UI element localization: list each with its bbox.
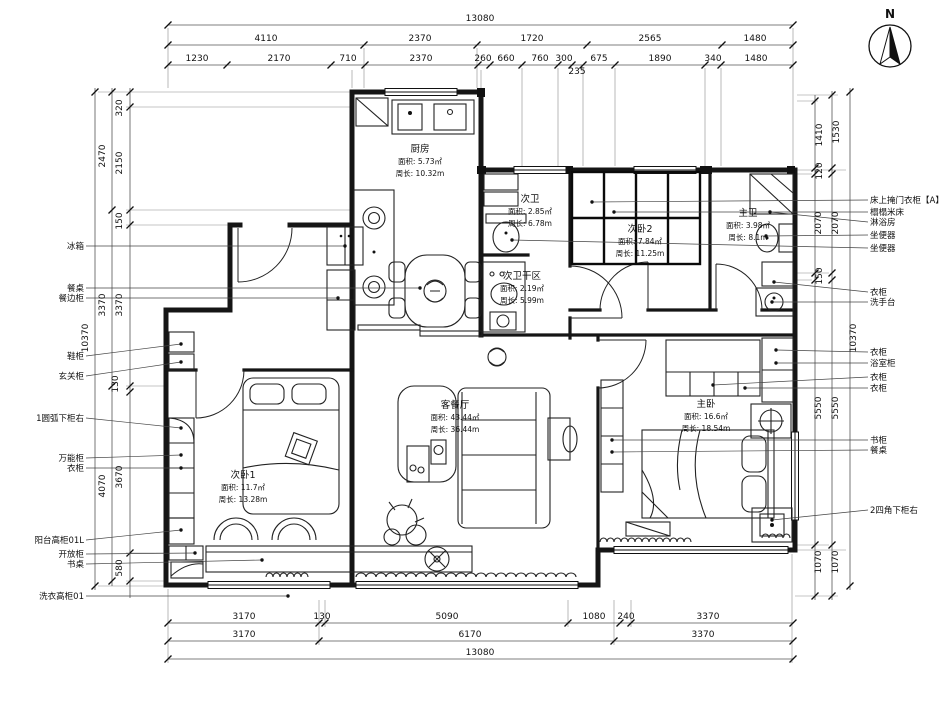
dimension-label: 120 [815, 162, 825, 179]
dimension-label: 2150 [115, 151, 125, 174]
pillow [742, 476, 766, 512]
leader-dot [336, 296, 339, 299]
room-name: 次卧1 [230, 469, 255, 481]
callout-label: 冰箱 [67, 241, 85, 252]
leader-dot [770, 518, 773, 521]
window-bedroom1-balcony [208, 582, 330, 589]
dimension-label: 320 [115, 99, 125, 116]
leader-line [86, 553, 195, 554]
leader-line [772, 510, 868, 520]
leader-dot [418, 286, 421, 289]
leader-dot [774, 348, 777, 351]
room-area: 面积: 16.6㎡ [684, 411, 729, 421]
callout-label: 淋浴房 [870, 217, 896, 228]
dimension-label: 1080 [583, 612, 606, 622]
room-area: 面积: 3.98㎡ [726, 220, 771, 230]
dimension-label: 1890 [649, 54, 672, 64]
callout-label: 1圆弧下柜右 [36, 413, 84, 424]
dimension-label: 675 [590, 54, 607, 64]
room-area: 面积: 11.7㎡ [221, 482, 266, 492]
dimension-label: 10370 [849, 323, 859, 352]
dimension-label: 2565 [639, 34, 662, 44]
dimension-label: 5550 [831, 396, 841, 419]
bedroom1-door [196, 370, 244, 418]
room-perimeter: 周长: 36.44m [431, 424, 480, 434]
dimension-label: 240 [617, 612, 634, 622]
callout-label: 洗手台 [870, 297, 896, 308]
leader-dot [610, 438, 613, 441]
dimension-label: 10370 [81, 323, 91, 352]
leader-line [592, 200, 868, 202]
callout-label: 玄关柜 [58, 371, 84, 382]
pillow [742, 436, 766, 472]
floor-plan-canvas: 冰箱餐桌餐边柜鞋柜玄关柜1圆弧下柜右万能柜衣柜阳台高柜01L开放柜书桌洗衣高柜0… [0, 0, 947, 701]
callout-label: 浴室柜 [870, 358, 896, 369]
stool [214, 518, 316, 540]
curtains [266, 534, 790, 577]
dimension-label: 710 [339, 54, 356, 64]
dimension-label: 340 [704, 54, 721, 64]
dimension-label: 4110 [255, 34, 278, 44]
leader-dot [286, 594, 289, 597]
floor-plant [387, 505, 417, 535]
leader-dot [774, 361, 777, 364]
leader-dot [772, 280, 775, 283]
room-area: 面积: 5.73㎡ [398, 156, 443, 166]
shoe-cabinet [169, 332, 194, 352]
leader-dot [590, 200, 593, 203]
dimension-label: 130 [111, 375, 121, 392]
compass-needle-black [890, 27, 900, 64]
master-bed [642, 430, 774, 518]
dimension-label: 4070 [98, 474, 108, 497]
dimension-label: 2370 [409, 34, 432, 44]
wall-column [477, 88, 485, 97]
callout-label: 榻榻米床 [870, 207, 905, 218]
room-perimeter: 周长: 6.78m [508, 218, 552, 228]
room-perimeter: 周长: 5.99m [500, 295, 544, 305]
chair [389, 298, 405, 318]
leader-dot [768, 210, 771, 213]
pillow [292, 384, 326, 404]
room-area: 面积: 7.84㎡ [618, 236, 663, 246]
dimension-label: 5550 [814, 396, 824, 419]
leader-dot [743, 386, 746, 389]
north-label: N [885, 7, 895, 21]
dimension-label: 13080 [466, 648, 495, 658]
room-area: 面积: 43.44㎡ [431, 412, 480, 422]
callout-label: 阳台高柜01L [34, 535, 84, 546]
leader-dot [610, 450, 613, 453]
room-name: 次卫干区 [503, 270, 542, 282]
dimension-label: 2370 [410, 54, 433, 64]
chair [389, 262, 405, 282]
dimension-label: 260 [474, 54, 491, 64]
dimension-label: 3370 [692, 630, 715, 640]
kitchen-sliding-door [358, 325, 482, 336]
dimension-label: 1720 [521, 34, 544, 44]
dimension-label: 660 [497, 54, 514, 64]
leader-dot [179, 466, 182, 469]
dimension-label: 300 [555, 54, 572, 64]
callout-label: 洗衣高柜01 [39, 591, 84, 602]
leader-dot [179, 426, 182, 429]
laundry-cabinet [171, 562, 203, 578]
dimension-label: 1530 [832, 120, 842, 143]
window-kitchen [385, 89, 457, 96]
window-bath2 [514, 167, 566, 174]
dimension-label: 1230 [186, 54, 209, 64]
master-door [598, 340, 646, 388]
room-perimeter: 周长: 8.1m [728, 232, 767, 242]
leader-line [612, 450, 868, 452]
callout-label: 餐桌 [870, 445, 888, 456]
dimension-label: 3670 [115, 465, 125, 488]
dimension-label: 150 [815, 267, 825, 284]
outer-walls [166, 92, 795, 585]
toilet [779, 224, 793, 252]
dimension-label: 3170 [233, 612, 256, 622]
leader-dot [179, 453, 182, 456]
callout-label: 餐桌 [67, 283, 85, 294]
dimension-label: 5090 [436, 612, 459, 622]
callout-label: 衣柜 [870, 287, 888, 298]
leader-dot [711, 383, 714, 386]
dimension-label: 2070 [814, 211, 824, 234]
compass-needle-white [880, 27, 890, 64]
dimension-label: 1070 [831, 550, 841, 573]
room-name: 次卫 [520, 193, 540, 205]
dimension-label: 2170 [268, 54, 291, 64]
masterbath-fixtures [750, 174, 793, 316]
callout-label: 床上掩门衣柜【A】 [870, 195, 944, 206]
callout-label: 餐边柜 [58, 293, 84, 304]
leader-dot [510, 238, 513, 241]
room-name: 次卧2 [627, 223, 652, 235]
dimension-label: 130 [313, 612, 330, 622]
dimension-label: 1480 [745, 54, 768, 64]
wall-column [700, 166, 712, 174]
callout-label: 坐便器 [870, 243, 896, 254]
desk [206, 546, 472, 572]
window-master-right [792, 432, 799, 520]
dimension-label: 150 [115, 212, 125, 229]
room-perimeter: 周长: 18.54m [682, 423, 731, 433]
callout-label: 衣柜 [870, 372, 888, 383]
callout-label: 坐便器 [870, 230, 896, 241]
dimension-label: 760 [531, 54, 548, 64]
masterbath-door [716, 264, 762, 310]
dimension-label: 3370 [98, 293, 108, 316]
room-name: 主卧 [696, 398, 716, 410]
room-perimeter: 周长: 11.25m [616, 248, 665, 258]
leader-dot [179, 342, 182, 345]
side-table [548, 418, 570, 460]
leader-dot [179, 528, 182, 531]
room-perimeter: 周长: 10.32m [396, 168, 445, 178]
room-area: 面积: 2.19㎡ [500, 283, 545, 293]
dimension-label: 1480 [744, 34, 767, 44]
pillow [250, 384, 284, 404]
dimension-label: 1070 [814, 550, 824, 573]
entry-door [238, 228, 292, 282]
callout-label: 衣柜 [870, 383, 888, 394]
dimension-label: 580 [115, 559, 125, 576]
callout-label: 衣柜 [870, 347, 888, 358]
room-area: 面积: 2.85㎡ [508, 206, 553, 216]
dimension-label: 6170 [459, 630, 482, 640]
dimension-label: 2070 [831, 211, 841, 234]
leader-dot [612, 210, 615, 213]
callout-leader-lines [86, 200, 868, 598]
leader-dot [770, 300, 773, 303]
room-perimeter: 周长: 13.28m [219, 494, 268, 504]
room-name: 主卫 [738, 207, 758, 219]
kitchen-fixtures [354, 98, 474, 305]
room-name: 厨房 [410, 143, 429, 155]
wall-column [787, 166, 795, 174]
dimension-label: 3170 [233, 630, 256, 640]
dimension-label: 2470 [98, 144, 108, 167]
dimension-label: 1410 [815, 123, 825, 146]
leader-dot [193, 551, 196, 554]
dimension-label: 13080 [466, 14, 495, 24]
bed [243, 378, 339, 514]
dimension-label: 235 [568, 67, 585, 77]
window-living-balcony [356, 582, 578, 589]
bedroom2-door [600, 262, 648, 310]
callout-label: 2四角下柜右 [870, 505, 918, 516]
callout-label: 书桌 [67, 559, 85, 570]
callout-label: 书柜 [870, 435, 888, 446]
callout-label: 衣柜 [67, 463, 85, 474]
leader-line [713, 377, 868, 385]
north-compass: N [869, 7, 911, 67]
wall-column [477, 166, 486, 174]
callout-label: 万能柜 [58, 453, 84, 464]
leader-dot [179, 360, 182, 363]
leader-dot [343, 244, 346, 247]
dimension-label: 3370 [115, 293, 125, 316]
floor-plan-page: 冰箱餐桌餐边柜鞋柜玄关柜1圆弧下柜右万能柜衣柜阳台高柜01L开放柜书桌洗衣高柜0… [0, 0, 947, 701]
callout-label: 开放柜 [58, 549, 84, 560]
leader-dot [260, 558, 263, 561]
window-master-bottom [614, 547, 788, 554]
room-name: 客餐厅 [441, 399, 470, 411]
cushion [285, 433, 317, 465]
dimension-label: 3370 [697, 612, 720, 622]
